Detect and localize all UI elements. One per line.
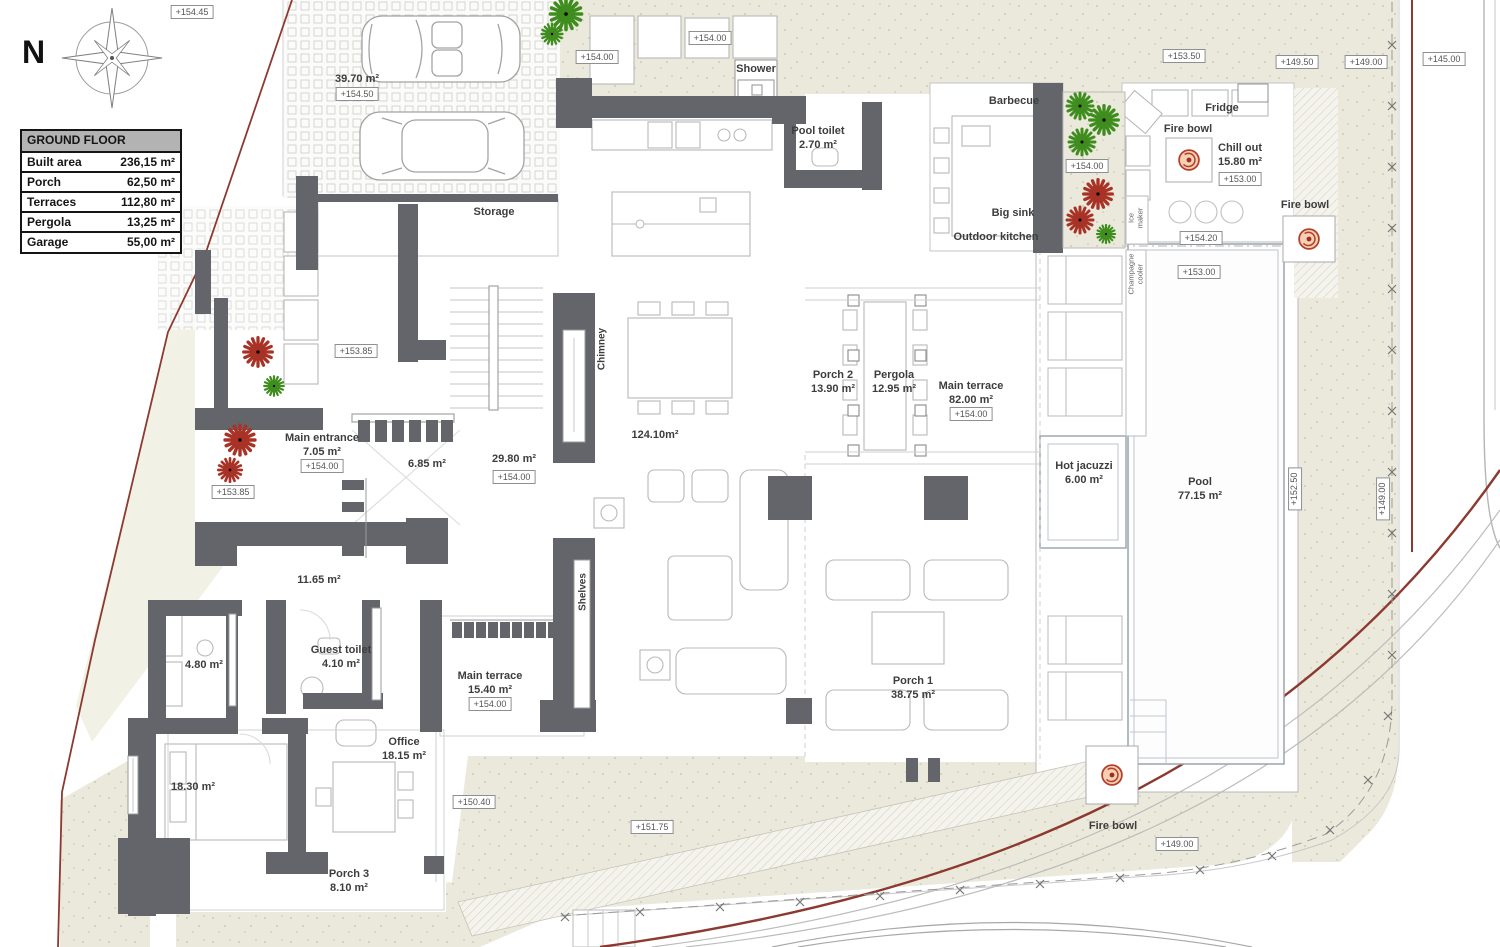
label-elev-153-85-upper: +153.85 — [335, 344, 378, 358]
compass-north-label: N — [22, 36, 45, 68]
label-main-entrance: Main entrance 7.05 m² — [285, 431, 359, 460]
label-corridor-29-80: 29.80 m² — [492, 452, 536, 466]
label-living-area: 124.10m² — [631, 428, 678, 442]
row-value: 112,80 m² — [121, 194, 175, 210]
row-value: 55,00 m² — [127, 234, 175, 250]
label-elev-154-00-corridor: +154.00 — [493, 470, 536, 484]
label-elev-150-40: +150.40 — [453, 795, 496, 809]
row-label: Terraces — [27, 194, 76, 210]
label-elev-149-00-bottom: +149.00 — [1156, 837, 1199, 851]
label-elev-154-20: +154.20 — [1180, 231, 1223, 245]
label-fire-bowl-chillout: Fire bowl — [1164, 122, 1212, 136]
row-value: 62,50 m² — [127, 174, 175, 190]
label-overlay: N GROUND FLOOR Built area236,15 m² Porch… — [0, 0, 1500, 947]
label-fire-bowl-bottom: Fire bowl — [1089, 819, 1137, 833]
label-hall-6-85: 6.85 m² — [408, 457, 446, 471]
label-barbecue: Barbecue — [989, 94, 1039, 108]
row-value: 236,15 m² — [120, 154, 175, 170]
label-elev-153-00-chillout: +153.00 — [1219, 172, 1262, 186]
label-bedroom-18-30: 18.30 m² — [171, 780, 215, 794]
label-elev-153-50: +153.50 — [1163, 49, 1206, 63]
table-row: Pergola13,25 m² — [22, 211, 180, 231]
row-label: Built area — [27, 154, 82, 170]
label-big-sink: Big sink — [992, 206, 1035, 220]
row-value: 13,25 m² — [127, 214, 175, 230]
label-pergola: Pergola 12.95 m² — [872, 368, 916, 397]
label-elev-152-50: +152.50 — [1288, 468, 1302, 511]
table-row: Garage55,00 m² — [22, 231, 180, 251]
label-hot-jacuzzi: Hot jacuzzi 6.00 m² — [1055, 459, 1112, 488]
table-header: GROUND FLOOR — [22, 131, 180, 151]
label-champagne-cooler: Champagne cooler — [1127, 254, 1144, 295]
label-shelves: Shelves — [577, 573, 589, 611]
label-porch-3: Porch 3 8.10 m² — [329, 867, 369, 896]
label-elev-149-00-top: +149.00 — [1345, 55, 1388, 69]
label-main-terrace-82: Main terrace 82.00 m² — [939, 379, 1004, 408]
label-elev-154-00-terrace: +154.00 — [950, 407, 993, 421]
label-elev-154-00-entrance: +154.00 — [301, 459, 344, 473]
label-bath-4-80: 4.80 m² — [185, 658, 223, 672]
label-elev-154-00-terrace2: +154.00 — [469, 697, 512, 711]
label-chill-out: Chill out 15.80 m² — [1218, 141, 1262, 170]
label-guest-toilet: Guest toilet 4.10 m² — [311, 643, 372, 672]
label-pool: Pool 77.15 m² — [1178, 475, 1222, 504]
label-storage: Storage — [474, 205, 515, 219]
label-elev-154-50: +154.50 — [336, 87, 379, 101]
table-row: Terraces112,80 m² — [22, 191, 180, 211]
label-elev-154-00-top: +154.00 — [689, 31, 732, 45]
label-outdoor-kitchen: Outdoor kitchen — [954, 230, 1039, 244]
label-office: Office 18.15 m² — [382, 735, 426, 764]
label-elev-151-75: +151.75 — [631, 820, 674, 834]
floor-plan-canvas: N GROUND FLOOR Built area236,15 m² Porch… — [0, 0, 1500, 947]
label-elev-154-00-kitchen: +154.00 — [576, 50, 619, 64]
label-ice-maker: Ice maker — [1127, 208, 1144, 229]
ground-floor-table: GROUND FLOOR Built area236,15 m² Porch62… — [20, 129, 182, 254]
label-fire-bowl-right: Fire bowl — [1281, 198, 1329, 212]
label-porch-2: Porch 2 13.90 m² — [811, 368, 855, 397]
table-row: Porch62,50 m² — [22, 171, 180, 191]
label-elev-149-50: +149.50 — [1276, 55, 1319, 69]
label-elev-145-00: +145.00 — [1423, 52, 1466, 66]
label-garage-area: 39.70 m² — [335, 72, 379, 86]
label-shower: Shower — [736, 62, 776, 76]
label-hall-11-65: 11.65 m² — [297, 573, 340, 587]
label-chimney: Chimney — [596, 328, 608, 370]
label-elev-154-00-planter: +154.00 — [1066, 159, 1109, 173]
label-elev-154-45: +154.45 — [171, 5, 214, 19]
label-elev-149-00-side: +149.00 — [1376, 478, 1390, 521]
label-fridge: Fridge — [1205, 101, 1239, 115]
table-row: Built area236,15 m² — [22, 151, 180, 171]
row-label: Pergola — [27, 214, 71, 230]
row-label: Garage — [27, 234, 68, 250]
label-main-terrace-15: Main terrace 15.40 m² — [458, 669, 523, 698]
row-label: Porch — [27, 174, 61, 190]
label-elev-153-00-pool: +153.00 — [1178, 265, 1221, 279]
label-elev-153-85-lower: +153.85 — [212, 485, 255, 499]
label-porch-1: Porch 1 38.75 m² — [891, 674, 935, 703]
label-pool-toilet: Pool toilet 2.70 m² — [791, 124, 844, 153]
